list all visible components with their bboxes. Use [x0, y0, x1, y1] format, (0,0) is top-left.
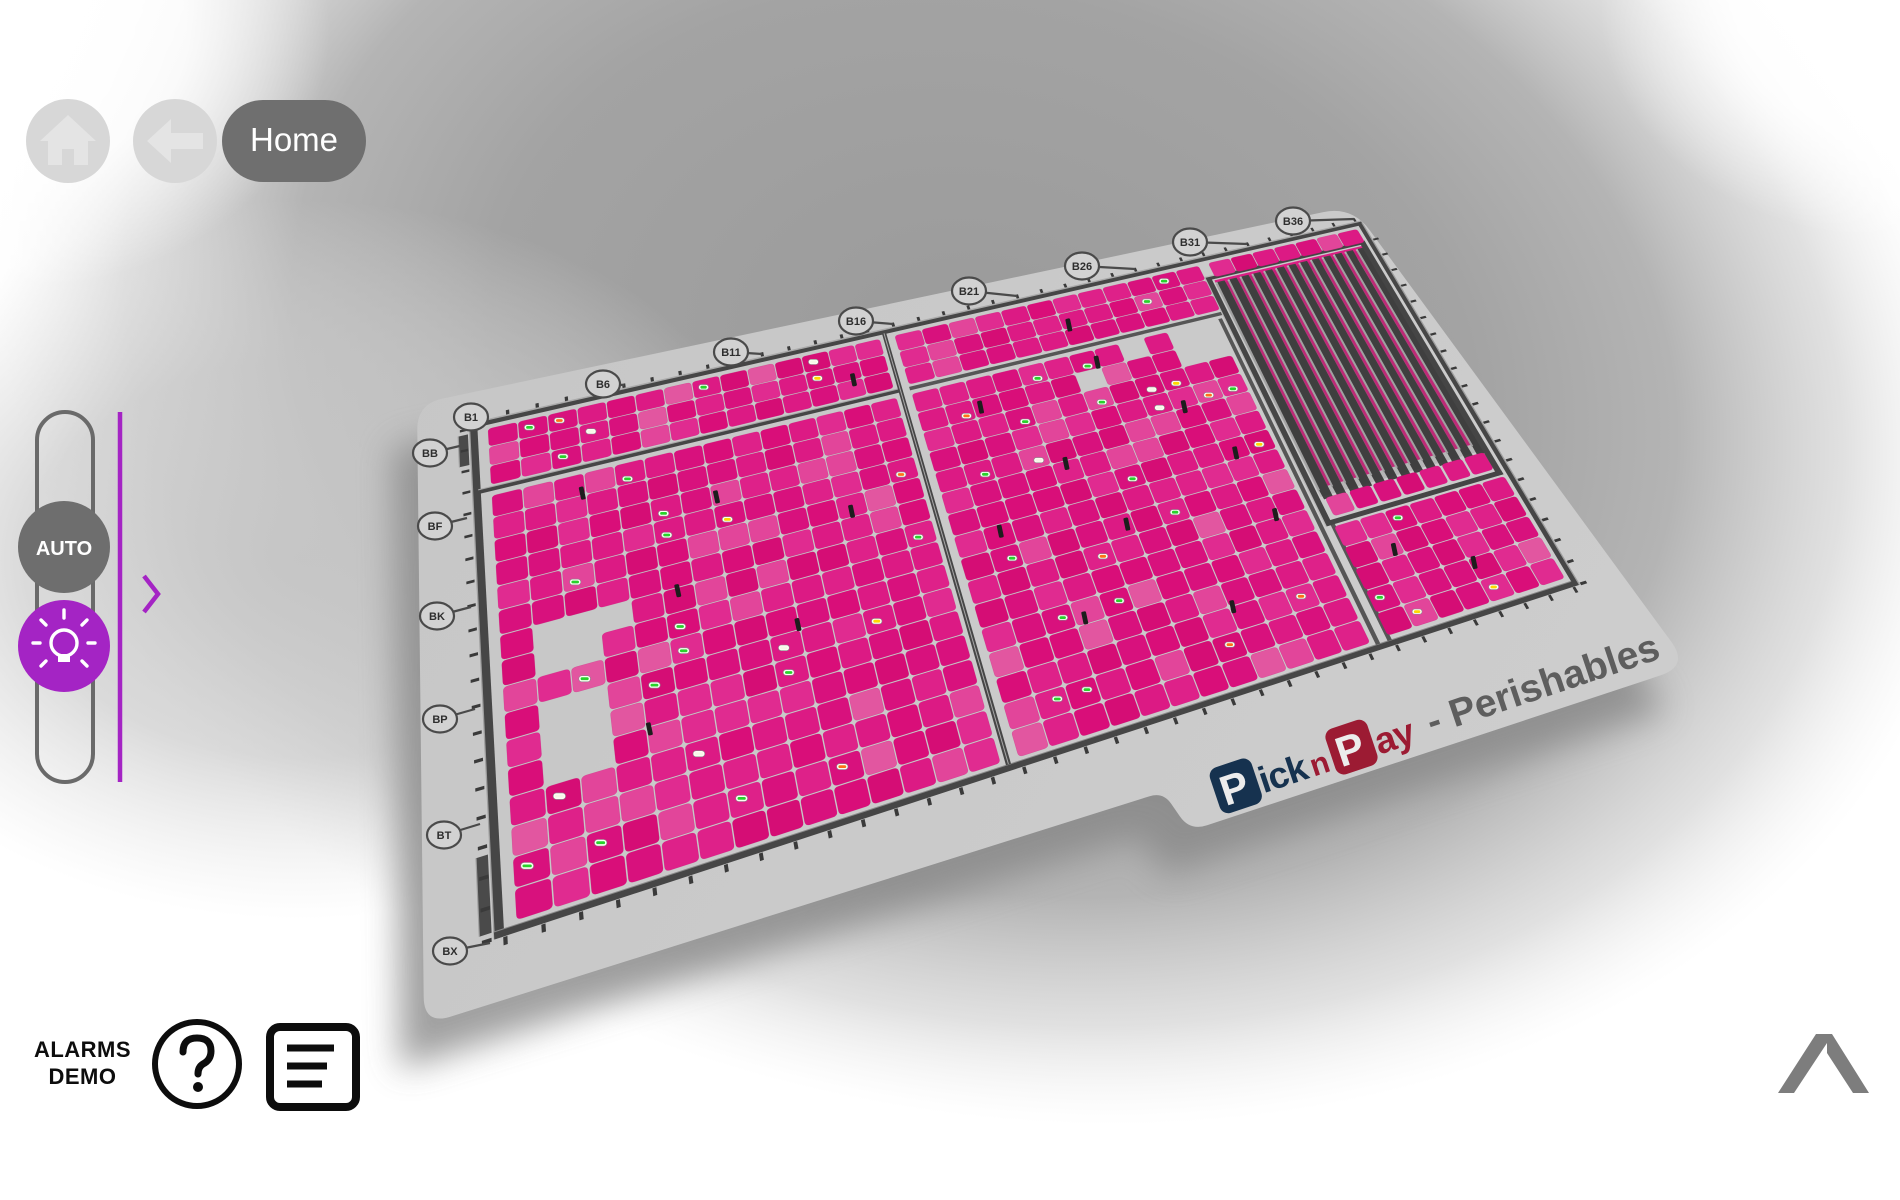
svg-text:B21: B21	[959, 286, 979, 298]
svg-text:BF: BF	[428, 521, 443, 533]
svg-text:B26: B26	[1072, 261, 1092, 273]
svg-text:BP: BP	[432, 714, 447, 726]
svg-text:B36: B36	[1283, 216, 1303, 228]
svg-text:BT: BT	[437, 830, 452, 842]
svg-text:B31: B31	[1180, 237, 1200, 249]
svg-text:BX: BX	[442, 946, 458, 958]
svg-text:B6: B6	[596, 379, 610, 391]
svg-text:B1: B1	[464, 412, 478, 424]
svg-text:B16: B16	[846, 316, 866, 328]
svg-text:B11: B11	[721, 347, 741, 359]
svg-text:AUTO: AUTO	[36, 538, 92, 560]
svg-text:BK: BK	[429, 611, 445, 623]
svg-text:BB: BB	[422, 448, 438, 460]
